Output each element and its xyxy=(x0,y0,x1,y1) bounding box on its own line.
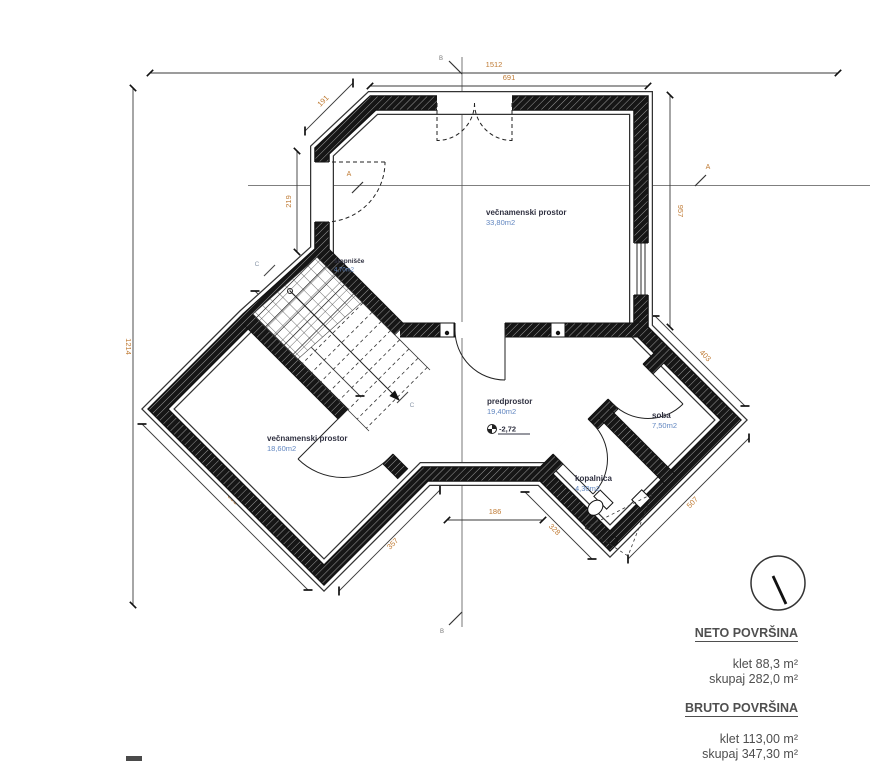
area-summary: NETO POVRŠINA klet 88,3 m² skupaj 282,0 … xyxy=(556,626,798,762)
dimension-right_wall: 957 xyxy=(667,92,685,330)
room-area: 4,70m2 xyxy=(334,268,355,274)
room-name: predprostor xyxy=(487,397,532,406)
column-dot xyxy=(445,331,449,335)
dimension-label: 219 xyxy=(284,195,293,208)
dimension-left_door_wall: 219 xyxy=(284,148,300,255)
orientation-needle xyxy=(773,576,786,604)
dimension-label: 507 xyxy=(685,495,700,510)
room-area: 33,80m2 xyxy=(486,218,515,227)
room-name: večnamenski prostor xyxy=(486,208,566,217)
room-area: 7,50m2 xyxy=(652,421,677,430)
orientation-circle xyxy=(751,556,805,610)
dimension-label: 357 xyxy=(385,536,400,551)
room-area: 4,30m2 xyxy=(575,484,600,493)
dimension-label: 191 xyxy=(315,93,330,108)
section-mark-b xyxy=(449,612,462,625)
section-label-c: C xyxy=(255,261,260,268)
section-mark-a xyxy=(695,175,706,186)
dimension-hall_bottom: 186 xyxy=(444,507,546,523)
dimension-left_total: 1214 xyxy=(124,85,136,608)
room-label-hall: predprostor19,40m2 xyxy=(487,397,532,416)
door-arc-left-wing xyxy=(298,459,388,477)
room-name: kopalnica xyxy=(575,474,612,483)
wall-opening xyxy=(558,424,593,459)
bruto-title-text: BRUTO POVRŠINA xyxy=(685,701,798,717)
section-mark-c xyxy=(397,392,408,403)
dimension-label: 1214 xyxy=(124,338,133,355)
bruto-row-skupaj: skupaj 347,30 m² xyxy=(556,747,798,762)
section-label-b: B xyxy=(440,629,444,635)
level-marker-value: -2,72 xyxy=(499,425,516,434)
wall-opening xyxy=(343,414,388,459)
page-edge-mark xyxy=(126,756,142,761)
section-mark-c xyxy=(264,265,275,276)
bruto-title: BRUTO POVRŠINA xyxy=(556,701,798,716)
room-area: 18,60m2 xyxy=(267,444,296,453)
room-name: stopnišče xyxy=(334,258,365,265)
wall-opening xyxy=(613,369,648,404)
neto-title-text: NETO POVRŠINA xyxy=(695,626,798,642)
floor-plan-page: 1512691121495719121952565835718632850740… xyxy=(0,0,890,780)
dimension-label: 957 xyxy=(676,205,685,218)
section-mark-a xyxy=(352,182,363,193)
section-label-b: B xyxy=(439,56,443,62)
dimension-label: 1512 xyxy=(486,60,503,69)
room-name: soba xyxy=(652,411,671,420)
dimension-top_wall: 691 xyxy=(367,73,651,89)
section-mark-b xyxy=(449,61,462,74)
section-label-c: C xyxy=(410,402,415,409)
neto-title: NETO POVRŠINA xyxy=(556,626,798,641)
room-label-top: večnamenski prostor33,80m2 xyxy=(486,208,566,227)
room-area: 19,40m2 xyxy=(487,407,516,416)
dimension-label: 186 xyxy=(489,507,502,516)
neto-row-skupaj: skupaj 282,0 m² xyxy=(556,672,798,687)
dimension-total_width: 1512 xyxy=(147,60,841,76)
column-dot xyxy=(556,331,560,335)
dimension-label: 328 xyxy=(547,522,562,537)
section-label-a: A xyxy=(347,171,352,178)
room-label-bath: kopalnica4,30m2 xyxy=(575,474,612,493)
dimension-label: 691 xyxy=(503,73,516,82)
room-name: večnamenski prostor xyxy=(267,434,347,443)
room-label-soba: soba7,50m2 xyxy=(652,411,677,430)
section-label-a: A xyxy=(706,164,711,171)
door-arc-soba xyxy=(613,404,683,418)
bruto-row-klet: klet 113,00 m² xyxy=(556,732,798,747)
neto-row-klet: klet 88,3 m² xyxy=(556,657,798,672)
